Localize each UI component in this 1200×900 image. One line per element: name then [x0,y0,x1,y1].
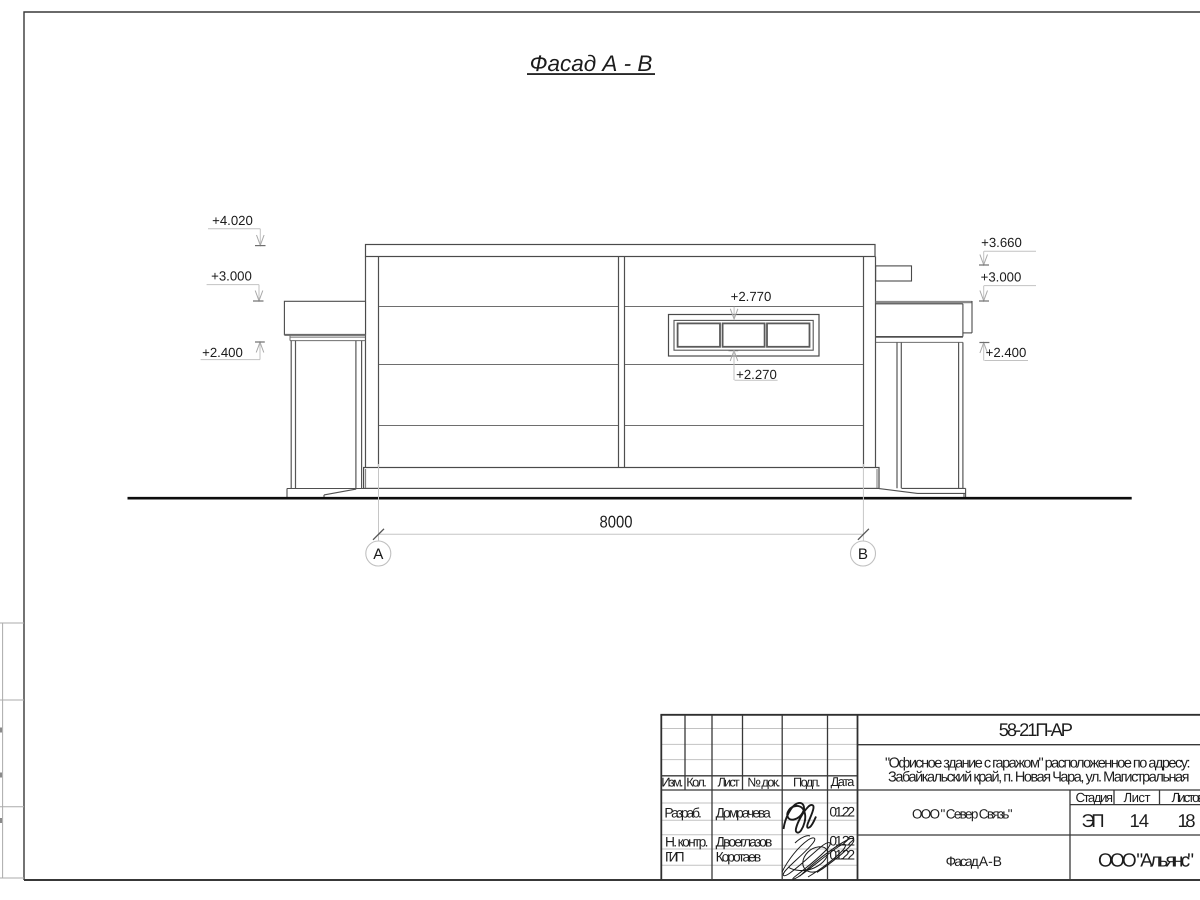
svg-text:+2.400: +2.400 [986,345,1027,360]
svg-text:ЭП: ЭП [1082,810,1105,831]
svg-text:Кол.: Кол. [686,775,707,790]
svg-text:ООО "Альянс": ООО "Альянс" [1098,851,1194,872]
svg-text:Забайкальский край, п. Новая Ч: Забайкальский край, п. Новая Чара, ул. М… [888,770,1190,786]
svg-text:ГИП: ГИП [665,850,685,865]
svg-text:Изм.: Изм. [661,775,683,790]
svg-text:+4.020: +4.020 [212,213,253,228]
svg-text:01.22: 01.22 [829,847,855,862]
svg-text:58-21П-АР: 58-21П-АР [999,719,1073,740]
svg-text:№ док.: № док. [747,775,780,790]
svg-text:+3.000: +3.000 [981,269,1022,284]
svg-text:Листов: Листов [1172,790,1200,805]
svg-text:+2.400: +2.400 [202,345,243,360]
svg-text:Подп.: Подп. [793,775,821,790]
svg-text:+2.270: +2.270 [736,367,777,382]
svg-text:01.22: 01.22 [829,805,855,820]
svg-text:В: В [858,546,868,563]
svg-text:А: А [373,546,384,563]
svg-text:Лист: Лист [718,775,740,790]
svg-text:ООО " Север Связь": ООО " Север Связь" [912,807,1013,822]
svg-text:8000: 8000 [600,512,633,531]
svg-text:01.22: 01.22 [829,834,855,849]
svg-text:Коротаев: Коротаев [716,850,762,865]
svg-text:14: 14 [1130,810,1150,831]
svg-text:18: 18 [1178,810,1196,831]
svg-text:+3.660: +3.660 [981,235,1022,250]
svg-text:Двоеглазов: Двоеглазов [716,834,773,849]
svg-text:Стадия: Стадия [1076,790,1114,805]
svg-text:Дата: Дата [831,774,856,789]
svg-text:Фасад А - В: Фасад А - В [946,854,1002,869]
svg-text:Домрачева: Домрачева [716,806,772,821]
svg-text:+3.000: +3.000 [211,269,252,284]
svg-text:Фасад А - В: Фасад А - В [530,51,653,76]
svg-text:Лист: Лист [1124,790,1151,805]
svg-text:+2.770: +2.770 [731,289,772,304]
svg-text:Разраб.: Разраб. [664,806,701,821]
svg-text:Н. контр.: Н. контр. [665,834,709,849]
